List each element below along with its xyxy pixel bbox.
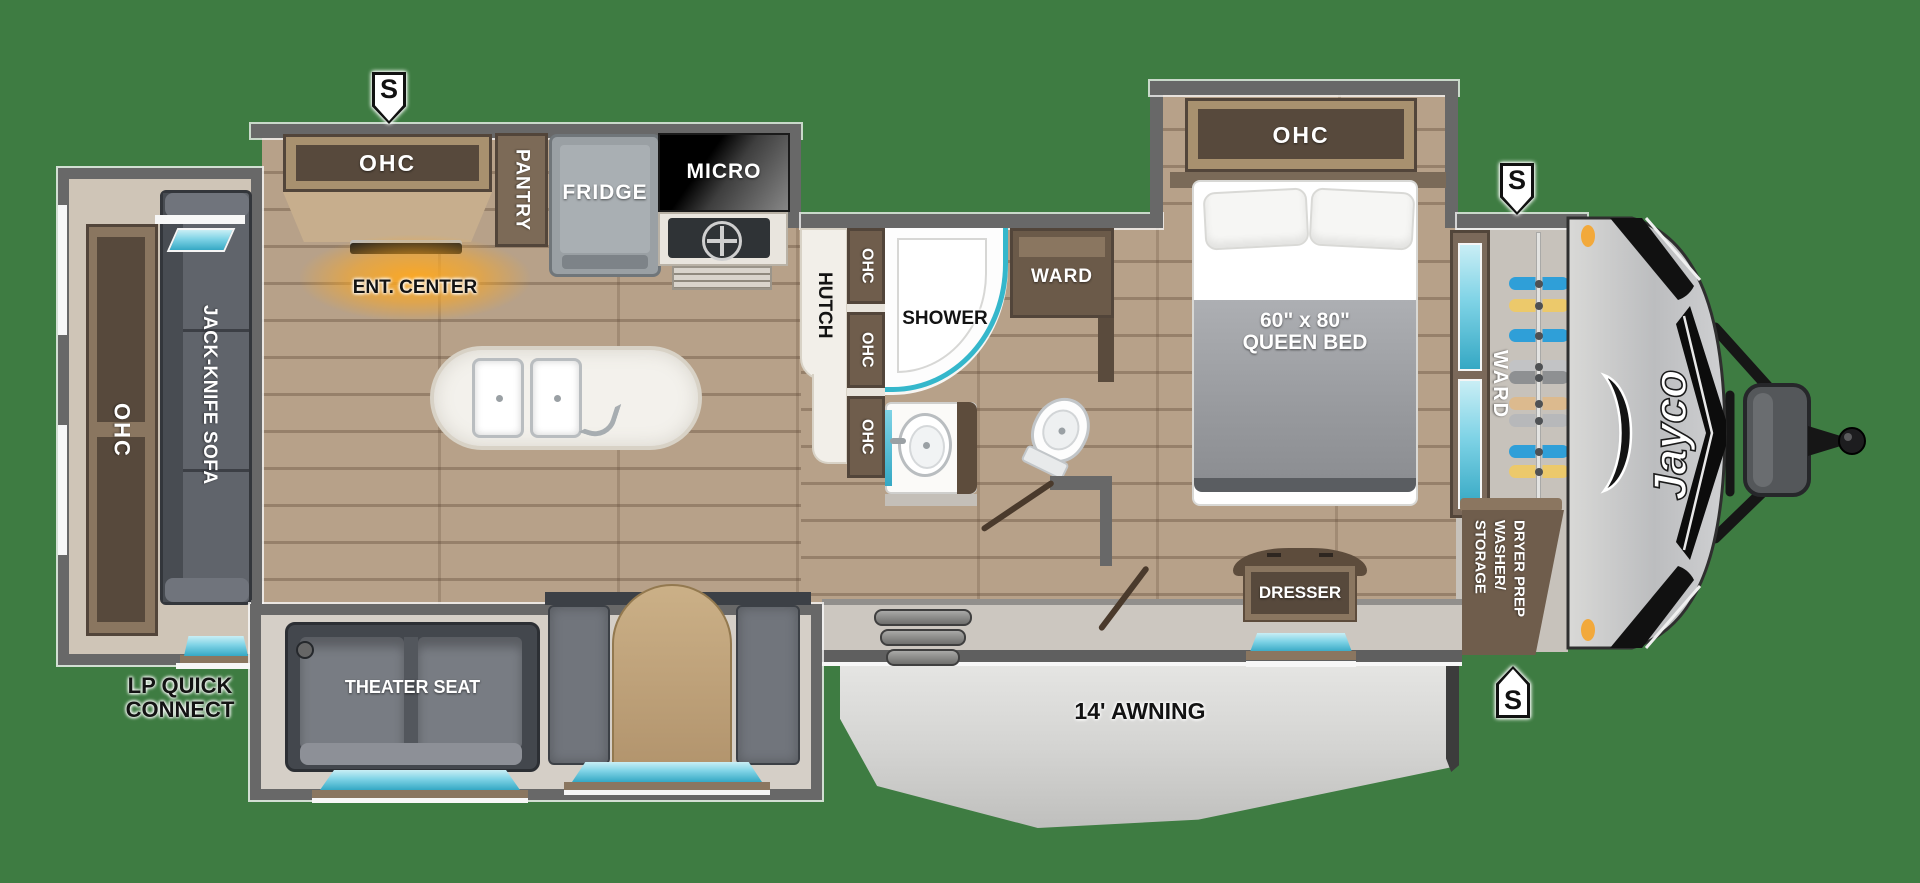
dinette-window <box>572 762 762 782</box>
clearance-light-top <box>1581 225 1595 247</box>
bath-sink-faucet <box>890 438 906 444</box>
entry-step-2 <box>880 629 966 646</box>
bedroom-ohc-label: OHC <box>1188 101 1414 169</box>
floorplan-canvas: 14' AWNING OHC JACK-KNIFE SOFA LP QUICK … <box>0 0 1920 883</box>
dinette-bench-left <box>548 605 610 765</box>
awning <box>840 660 1458 828</box>
bed-foot-band <box>1194 478 1416 492</box>
range-counter <box>658 212 788 266</box>
speaker-badge-bedroom: S <box>1500 163 1534 215</box>
rear-bottom-window <box>184 636 248 656</box>
bedroom-ohc-cabinet: OHC <box>1185 98 1417 172</box>
bed-size-label: 60" x 80" QUEEN BED <box>1194 310 1416 354</box>
dinette-bench-right <box>736 605 800 765</box>
ent-center-label: ENT. CENTER <box>330 277 500 299</box>
awning-label: 14' AWNING <box>1030 698 1250 725</box>
theater-seat-label: THEATER SEAT <box>310 678 515 697</box>
speaker-badge-exterior: S <box>1496 666 1530 718</box>
rear-bottom-window-sill <box>180 655 254 663</box>
range-drawers <box>672 266 772 290</box>
theater-window-sill <box>312 790 528 798</box>
hutch-label: HUTCH <box>804 248 844 363</box>
lp-quick-connect-label: LP QUICK CONNECT <box>100 674 260 722</box>
rear-ohc-cabinet: OHC <box>86 224 158 636</box>
theater-seat <box>285 622 540 772</box>
bedroom-slide-right-wall <box>1445 81 1458 228</box>
rear-bottom-window-trim <box>176 663 256 669</box>
island-sink-right <box>530 358 582 438</box>
kitchen-ohc-cabinet: OHC <box>283 134 492 192</box>
storage-wd-label: STORAGE WASHER/ DRYER PREP <box>1470 520 1529 617</box>
dresser: DRESSER <box>1233 548 1367 624</box>
rear-window-top <box>58 205 67 335</box>
bath-ward: WARD <box>1010 228 1114 318</box>
microwave-label: MICRO <box>660 135 788 210</box>
front-cap-and-hitch: Jayco <box>1540 210 1920 656</box>
entry-step-3 <box>886 649 960 666</box>
bed-pillow-left <box>1203 187 1310 250</box>
kitchen-ohc-label: OHC <box>286 137 489 189</box>
bath-sink-base <box>885 494 977 506</box>
speaker-badge-kitchen: S <box>372 72 406 124</box>
main-top-wall-mid <box>801 214 1162 228</box>
island-sink-left <box>472 358 524 438</box>
fridge: FRIDGE <box>549 134 661 277</box>
galley-ohc-2: OHC <box>847 312 885 388</box>
clearance-light-bottom <box>1581 619 1595 641</box>
bedroom-slide-top-wall <box>1150 81 1458 95</box>
dinette-window-trim <box>564 790 770 795</box>
dinette-window-sill <box>564 782 770 790</box>
dresser-window-sill <box>1246 651 1356 660</box>
galley-ohc-strip: OHC OHC OHC <box>847 228 885 478</box>
sofa-label: JACK-KNIFE SOFA <box>186 230 232 560</box>
bedroom-slide-left-wall <box>1150 94 1163 228</box>
rear-corner-window <box>167 228 236 252</box>
dresser-label: DRESSER <box>1251 572 1349 614</box>
theater-window <box>320 770 520 790</box>
microwave: MICRO <box>658 133 790 212</box>
bath-ward-label: WARD <box>1013 255 1111 299</box>
brand-logo-text: Jayco <box>1644 370 1696 500</box>
theater-window-trim <box>312 798 528 803</box>
entry-step-1 <box>874 609 972 626</box>
pantry: PANTRY <box>495 133 548 247</box>
bed-pillow-right <box>1309 187 1416 250</box>
bath-sink-side <box>957 402 977 494</box>
dresser-window <box>1250 633 1352 652</box>
hutch-counter-lower <box>812 374 848 464</box>
dresser-window-trim <box>1246 661 1356 667</box>
rear-window-bottom <box>58 425 67 555</box>
bath-ward-side-wall <box>1098 318 1114 382</box>
stove-burner-icon <box>702 221 742 261</box>
hall-wall-stub <box>1100 488 1112 566</box>
hitch-ball <box>1839 428 1865 454</box>
queen-bed: 60" x 80" QUEEN BED <box>1192 180 1418 506</box>
awning-end-cap <box>1446 660 1459 772</box>
fridge-label: FRIDGE <box>552 173 658 213</box>
galley-ohc-1: OHC <box>847 228 885 304</box>
shower-label: SHOWER <box>890 308 1000 330</box>
rear-ohc-label: OHC <box>89 227 155 633</box>
pantry-label: PANTRY <box>498 136 545 244</box>
bath-sink-bowl <box>898 413 952 477</box>
rear-corner-window-trim <box>155 215 245 224</box>
bath-sink-accent <box>885 410 892 486</box>
dinette-table <box>612 584 732 770</box>
front-ward-label: WARD <box>1489 350 1510 419</box>
galley-ohc-3: OHC <box>847 396 885 478</box>
left-lower-wall <box>251 600 262 615</box>
front-mirror-cabinet <box>1450 230 1490 518</box>
